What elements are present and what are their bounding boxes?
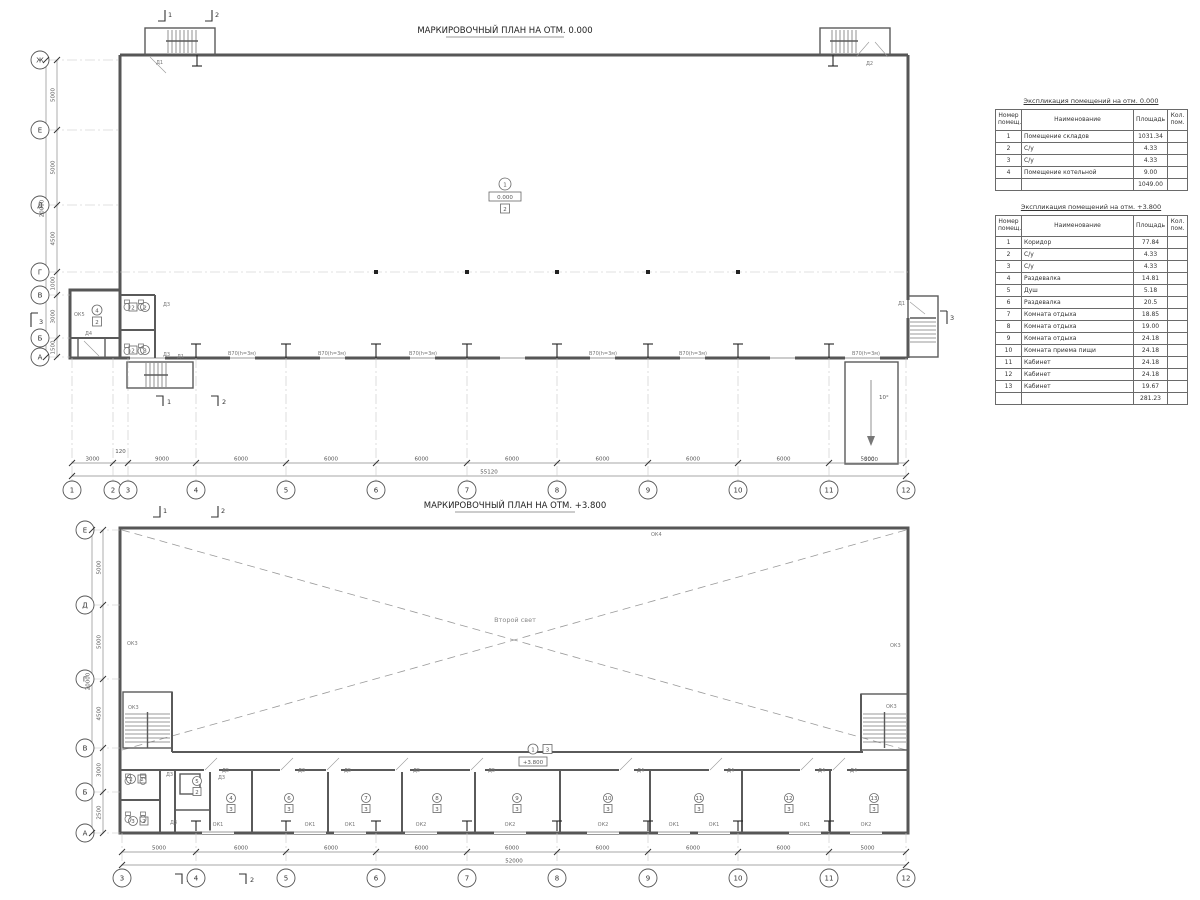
dimension-total: 20000 [86,672,92,690]
door-label: Д3 [166,772,173,778]
plan2-corridor-marker: 1 3 +3.800 [519,744,552,766]
dimension-label: 6000 [324,846,338,852]
table-cell: 12 [996,369,1022,381]
dimension-label: 5000 [152,846,166,852]
section-mark: 2 [221,507,225,515]
axis-label: 8 [555,875,559,883]
door-label: Д3 [163,302,170,308]
dimension-label: 6000 [234,457,248,463]
dimension-label: 4500 [97,706,103,720]
table-cell [1168,273,1188,285]
room-schedule-1-title: Экспликация помещений на отм. +3.800 [995,203,1187,211]
table-cell: Раздевалка [1022,297,1134,309]
section-mark: 1 [168,11,172,19]
table-cell [1168,167,1188,179]
axis-label: 4 [194,875,199,883]
table-cell: 4 [996,273,1022,285]
axis-label: 5 [284,875,288,883]
table-cell: 2 [996,143,1022,155]
dimension-label: 5000 [51,88,57,102]
table-cell [1168,131,1188,143]
wall-panel-label: В70(h=3м) [679,351,707,357]
window-label: ОК2 [861,822,872,828]
window-label: ОК1 [213,822,224,828]
door-label: Д3 [170,820,177,826]
window-label-left-wall: ОК3 [127,641,138,647]
dimension-label: 5000 [861,846,875,852]
table-cell: 18.85 [1134,309,1168,321]
table-cell: 9.00 [1134,167,1168,179]
dimension-label: 3000 [51,309,57,323]
wall-panel-label: В70(h=3м) [318,351,346,357]
door-label: Д3 [218,775,225,781]
table-header-cell: Кол. пом. [1168,216,1188,237]
axis-label: Д [82,602,88,610]
axis-label: Б [83,789,88,797]
table-cell: 4.33 [1134,143,1168,155]
room-type: 2 [195,790,199,796]
plan1-section-marks: 1 2 1 2 3 [31,10,226,406]
room-type: 3 [872,807,876,813]
axis-label: 7 [465,875,469,883]
door-label: Д5 [344,768,351,774]
axis-label: 3 [120,875,124,883]
table-cell: 20.5 [1134,297,1168,309]
plan2-stair-right: ОК3 [861,694,908,750]
dimension-label: 6000 [686,846,700,852]
plan1-stair-top-left: Д1 [145,28,215,73]
table-cell: С/у [1022,261,1134,273]
window-label: ОК5 [74,312,85,318]
room-elevation: +3.800 [523,760,544,766]
plan1-room-marker: 1 0.000 2 [489,178,521,213]
dimension-total: 55120 [480,470,498,476]
plan1-stair-right: Д1 3 [898,296,954,357]
axis-label: Е [38,127,42,135]
door-label: Д4 [85,331,92,337]
dimension-total: 52000 [505,859,523,865]
wall-panel-label: В70(h=3м) [409,351,437,357]
room-number: 11 [696,796,703,802]
table-cell: Кабинет [1022,369,1134,381]
room-number: 1 [531,748,535,754]
door-label: Д5 [222,768,229,774]
room-type: 3 [364,807,368,813]
table-cell [1168,297,1188,309]
room-number: 5 [195,779,199,785]
room-schedule-1: Экспликация помещений на отм. +3.800 Ном… [995,203,1187,405]
table-cell: 3 [996,261,1022,273]
ramp-angle: 10° [879,395,889,401]
dimension-total: 20000 [40,199,46,217]
table-header-cell: Кол. пом. [1168,110,1188,131]
table-cell: 6 [996,297,1022,309]
wall-panel-label: В70(h=3м) [589,351,617,357]
plan2-walls [120,528,908,833]
table-cell: 5 [996,285,1022,297]
table-cell: 2 [996,249,1022,261]
door-label: Д1 [898,301,905,307]
axis-label: 3 [126,487,130,495]
axis-label: 9 [646,875,650,883]
room-type: 3 [697,807,701,813]
table-cell: 1 [996,131,1022,143]
room-type: 3 [287,807,291,813]
dimension-label: 1000 [51,276,57,290]
dimension-label: 6000 [777,457,791,463]
section-mark: 2 [215,11,219,19]
axis-label: А [38,354,43,362]
plan1-title: МАРКИРОВОЧНЫЙ ПЛАН НА ОТМ. 0.000 [417,24,592,36]
table-cell [1168,261,1188,273]
table-cell: Душ [1022,285,1134,297]
room-schedule-1-table: Номер помещ.НаименованиеПлощадьКол. пом.… [995,215,1188,405]
table-cell [1168,321,1188,333]
axis-label: 1 [70,487,74,495]
table-cell [1168,249,1188,261]
plan1-annex: ОК5 Д4 4 2 [70,290,120,358]
room-number: 8 [435,796,439,802]
table-cell: Комната приема пищи [1022,345,1134,357]
table-cell [1168,179,1188,191]
table-cell: 7 [996,309,1022,321]
window-label: ОК1 [800,822,811,828]
column [736,270,740,274]
table-cell [1168,155,1188,167]
section-mark-3-right: 3 [950,314,954,322]
table-cell: 8 [996,321,1022,333]
window-label: ОК1 [709,822,720,828]
room-type: 2 [131,306,135,312]
door-label: Д4 [637,768,644,774]
axis-label: Б [38,335,43,343]
window-label: ОК2 [505,822,516,828]
door-label: Д3 [298,768,305,774]
door-label: Д3 [163,352,170,358]
drawing-sheet: МАРКИРОВОЧНЫЙ ПЛАН НА ОТМ. 0.000 [0,0,1200,900]
toilet-fixture [126,812,131,816]
room-schedule-0-table: Номер помещ.НаименованиеПлощадьКол. пом.… [995,109,1188,191]
room-number: 4 [95,309,99,315]
dimension-label: 6000 [505,457,519,463]
table-cell: Комната отдыха [1022,321,1134,333]
table-cell: 4.33 [1134,261,1168,273]
plan1-toilets: Д3 Д3 2 2 2 3 [120,295,170,358]
dimension-label: 120 [115,449,126,455]
door-label: Д4 [850,768,857,774]
room-schedule-0: Экспликация помещений на отм. 0.000 Номе… [995,97,1187,191]
plan1-walls [70,55,908,358]
table-cell [1168,369,1188,381]
table-cell: 4.33 [1134,249,1168,261]
dimension-label: 9000 [155,457,169,463]
table-cell: 9 [996,333,1022,345]
window-label: ОК3 [128,705,139,711]
table-cell [1168,143,1188,155]
table-header-cell: Площадь [1134,216,1168,237]
dimension-label: 4500 [51,231,57,245]
table-header-cell: Номер помещ. [996,110,1022,131]
table-cell: Помещение котельной [1022,167,1134,179]
window-label-top: ОК4 [651,532,662,538]
dimension-label: 5000 [97,560,103,574]
table-cell: Раздевалка [1022,273,1134,285]
table-cell: 13 [996,381,1022,393]
room-number: 7 [364,796,368,802]
dimension-label: 3000 [97,763,103,777]
axis-label: 12 [902,875,911,883]
plan1-generated: 1300021203900046000560006600076000860009… [31,51,915,499]
table-cell: Кабинет [1022,381,1134,393]
axis-label: В [83,745,88,753]
table-cell: 1049.00 [1134,179,1168,191]
room-type: 3 [787,807,791,813]
table-cell: 19.67 [1134,381,1168,393]
plan1-stair-bottom: Д1 [127,354,193,388]
table-cell [1022,179,1134,191]
axis-label: А [83,830,88,838]
dimension-label: 5000 [51,160,57,174]
table-cell: Помещение складов [1022,131,1134,143]
dimension-label: 6000 [234,846,248,852]
table-cell: 24.18 [1134,357,1168,369]
room-number: 13 [871,796,878,802]
table-cell [996,179,1022,191]
table-cell [1168,345,1188,357]
room-number: 9 [515,796,519,802]
dimension-label: 5000 [861,457,875,463]
table-cell: С/у [1022,143,1134,155]
table-cell [1168,285,1188,297]
table-cell: 77.84 [1134,237,1168,249]
table-cell [996,393,1022,405]
axis-label: В [38,292,43,300]
section-mark: 2 [222,398,226,406]
room-number: 10 [605,796,612,802]
axis-label: 4 [194,487,199,495]
window-label: ОК1 [345,822,356,828]
table-cell: Комната отдыха [1022,333,1134,345]
dimension-label: 6000 [596,457,610,463]
door-label: Д4 [818,768,825,774]
axis-label: 5 [284,487,288,495]
table-cell: 281.23 [1134,393,1168,405]
dimension-label: 3000 [86,457,100,463]
table-cell [1168,393,1188,405]
section-mark: 2 [250,876,254,884]
table-cell [1168,309,1188,321]
table-cell: Кабинет [1022,357,1134,369]
table-cell: 4.33 [1134,155,1168,167]
room-type: 3 [515,807,519,813]
table-cell: Коридор [1022,237,1134,249]
axis-label: 6 [374,875,379,883]
room-number: 4 [229,796,233,802]
table-cell [1168,333,1188,345]
dimension-label: 6000 [596,846,610,852]
table-cell: Комната отдыха [1022,309,1134,321]
axis-label: Г [38,269,42,277]
axis-label: 8 [555,487,559,495]
room-elevation: 0.000 [497,195,513,201]
room-type: 2 [131,349,135,355]
door-label: Д4 [727,768,734,774]
table-cell: 4 [996,167,1022,179]
axis-label: Е [83,527,87,535]
dimension-label: 6000 [686,457,700,463]
door-label: Д5 [488,768,495,774]
room-type: 2 [503,207,507,213]
wall-panel-label: В70(h=3м) [852,351,880,357]
table-cell: 3 [996,155,1022,167]
plan1-stair-top-right: Д2 [820,28,890,67]
dimension-label: 6000 [505,846,519,852]
plan1-ramp: 10° 5000 [845,362,898,464]
room-number: 3 [131,819,135,825]
window-label: ОК1 [305,822,316,828]
table-header-cell: Наименование [1022,110,1134,131]
axis-label: 10 [734,487,743,495]
section-mark-3-left: 3 [39,318,43,326]
table-cell [1168,237,1188,249]
axis-label: 2 [111,487,115,495]
axis-label: 11 [825,875,834,883]
window-label: ОК2 [416,822,427,828]
plan1: МАРКИРОВОЧНЫЙ ПЛАН НА ОТМ. 0.000 [31,10,954,499]
room-schedule-0-title: Экспликация помещений на отм. 0.000 [995,97,1187,105]
axis-label: 6 [374,487,379,495]
table-cell: 14.81 [1134,273,1168,285]
room-number: 12 [786,796,793,802]
section-mark: 1 [163,507,167,515]
table-cell: С/у [1022,249,1134,261]
table-header-cell: Площадь [1134,110,1168,131]
table-cell: 11 [996,357,1022,369]
void-label: Второй свет [494,616,536,624]
room-number: 6 [287,796,291,802]
table-cell: 24.18 [1134,369,1168,381]
dimension-label: 6000 [777,846,791,852]
door-label: Д1 [177,354,184,360]
section-mark: 1 [167,398,171,406]
table-cell [1168,381,1188,393]
axis-label: 11 [825,487,834,495]
column [555,270,559,274]
door-label: Д2 [866,61,873,67]
door-label: Д5 [413,768,420,774]
room-type: 3 [229,807,233,813]
room-number: 1 [503,183,507,189]
plan2-title: МАРКИРОВОЧНЫЙ ПЛАН НА ОТМ. +3.800 [424,499,606,511]
dimension-label: 6000 [415,846,429,852]
room-type: 2 [95,320,99,326]
table-cell: 19.00 [1134,321,1168,333]
window-label: ОК3 [886,704,897,710]
table-cell [1022,393,1134,405]
column [646,270,650,274]
dimension-label: 5000 [97,635,103,649]
table-cell: С/у [1022,155,1134,167]
axis-label: 10 [734,875,743,883]
door-label: Д1 [156,60,163,66]
axis-label: 12 [902,487,911,495]
plan2: МАРКИРОВОЧНЫЙ ПЛАН НА ОТМ. +3.800 [76,499,915,887]
window-label: ОК1 [669,822,680,828]
column [465,270,469,274]
room-type: 3 [435,807,439,813]
table-header-cell: Номер помещ. [996,216,1022,237]
table-cell [1168,357,1188,369]
toilet-fixture [141,812,146,816]
column [374,270,378,274]
axis-label: 9 [646,487,650,495]
plan2-stair-left: ОК3 [123,692,172,748]
dimension-label: 1500 [51,340,57,354]
table-cell: 24.18 [1134,345,1168,357]
window-label-right-wall: ОК3 [890,643,901,649]
table-cell: 1031.34 [1134,131,1168,143]
table-cell: 24.18 [1134,333,1168,345]
dimension-label: 2500 [97,805,103,819]
table-cell: 5.18 [1134,285,1168,297]
window-label: ОК2 [598,822,609,828]
axis-label: Ж [36,57,44,65]
dimension-label: 6000 [415,457,429,463]
wall-panel-label: В70(h=3м) [228,351,256,357]
axis-label: 7 [465,487,469,495]
room-type: 3 [546,748,550,754]
table-header-cell: Наименование [1022,216,1134,237]
dimension-label: 6000 [324,457,338,463]
table-cell: 10 [996,345,1022,357]
table-cell: 1 [996,237,1022,249]
room-type: 3 [606,807,610,813]
